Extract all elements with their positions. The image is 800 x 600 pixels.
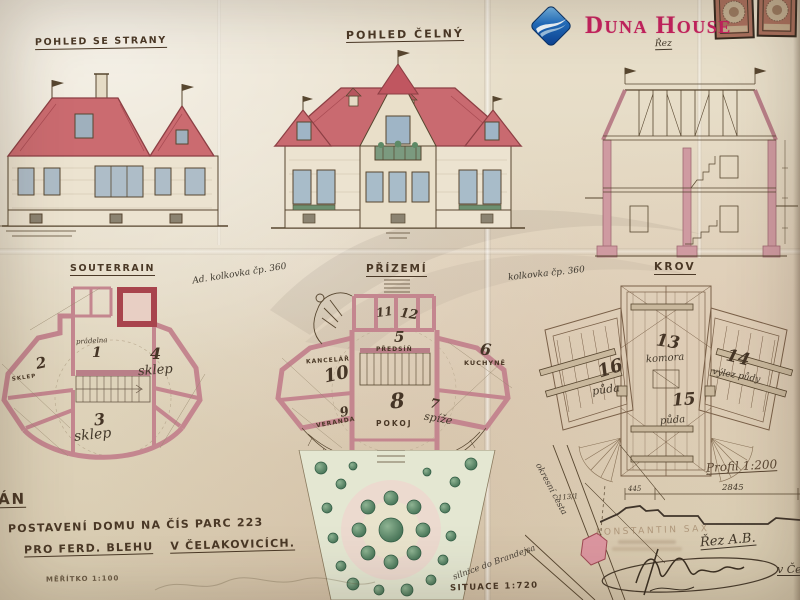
- cross-section-drawing: [585, 48, 798, 260]
- side-terrace-steps: [0, 226, 80, 236]
- place-cut-text: v Če: [777, 564, 800, 576]
- ground-plan-drawing: [272, 278, 520, 473]
- room-number: 6: [479, 341, 492, 358]
- stamp-2: [758, 0, 797, 36]
- section-floors: [585, 136, 798, 256]
- logo-brand-text: Duna House: [585, 12, 732, 40]
- label-basement: SOUTERRAIN: [70, 264, 155, 276]
- ground-stairs: [360, 348, 430, 385]
- duna-house-logo: Duna House: [528, 3, 732, 49]
- room-number: 1: [92, 346, 102, 360]
- room-number: 15: [671, 391, 696, 410]
- section-truss: [603, 68, 776, 140]
- room-number: 12: [399, 307, 419, 322]
- room-number: 13: [655, 332, 681, 352]
- room-name: půda: [660, 415, 686, 427]
- plan-photograph: POHLED SE STRANY: [0, 0, 800, 600]
- basement-plan-drawing: [0, 278, 232, 490]
- room-number: 4: [150, 346, 161, 362]
- dimension-2845: 2845: [722, 484, 744, 493]
- basement-entry-room: [120, 290, 154, 324]
- ground-spiral-stair: [314, 293, 352, 344]
- logo-diamond-wave-icon: [528, 3, 574, 49]
- front-elevation-drawing: [263, 42, 533, 242]
- room-number: 5: [394, 330, 404, 345]
- section-walls: [597, 140, 780, 257]
- side-elevation-drawing: [0, 48, 238, 240]
- room-number: 10: [322, 364, 350, 387]
- label-roof-plan: KROV: [654, 262, 696, 275]
- title-client: PRO FERD. BLEHU: [24, 540, 154, 557]
- label-ground-floor: PŘÍZEMÍ: [366, 264, 427, 277]
- title-place: V ČELAKOVICÍCH.: [170, 536, 295, 553]
- room-name: KUCHYNĚ: [464, 360, 506, 367]
- ground-walls: [278, 296, 508, 473]
- label-front-view: POHLED ČELNÝ: [346, 28, 464, 43]
- room-number: 8: [389, 390, 405, 412]
- profile-dimension: [625, 488, 800, 500]
- dimension-445: 445: [628, 486, 641, 493]
- room-name: sklep: [138, 363, 174, 378]
- room-name: POKOJ: [376, 420, 413, 428]
- room-name: sklep: [73, 426, 112, 444]
- title-scale: MĚŘÍTKO 1:100: [46, 575, 119, 583]
- room-number: 11: [375, 305, 393, 319]
- title-line-2: PRO FERD. BLEHU V ČELAKOVICÍCH.: [24, 537, 295, 555]
- signature: [598, 543, 788, 600]
- room-name: PŘEDSÍŇ: [376, 347, 413, 353]
- pencil-scribbles: [150, 572, 380, 598]
- title-plan-partial: ÁN: [0, 492, 26, 508]
- profile-terrain-line: [600, 506, 800, 524]
- title-line-1: POSTAVENÍ DOMU NA ČÍS PARC 223: [8, 517, 264, 535]
